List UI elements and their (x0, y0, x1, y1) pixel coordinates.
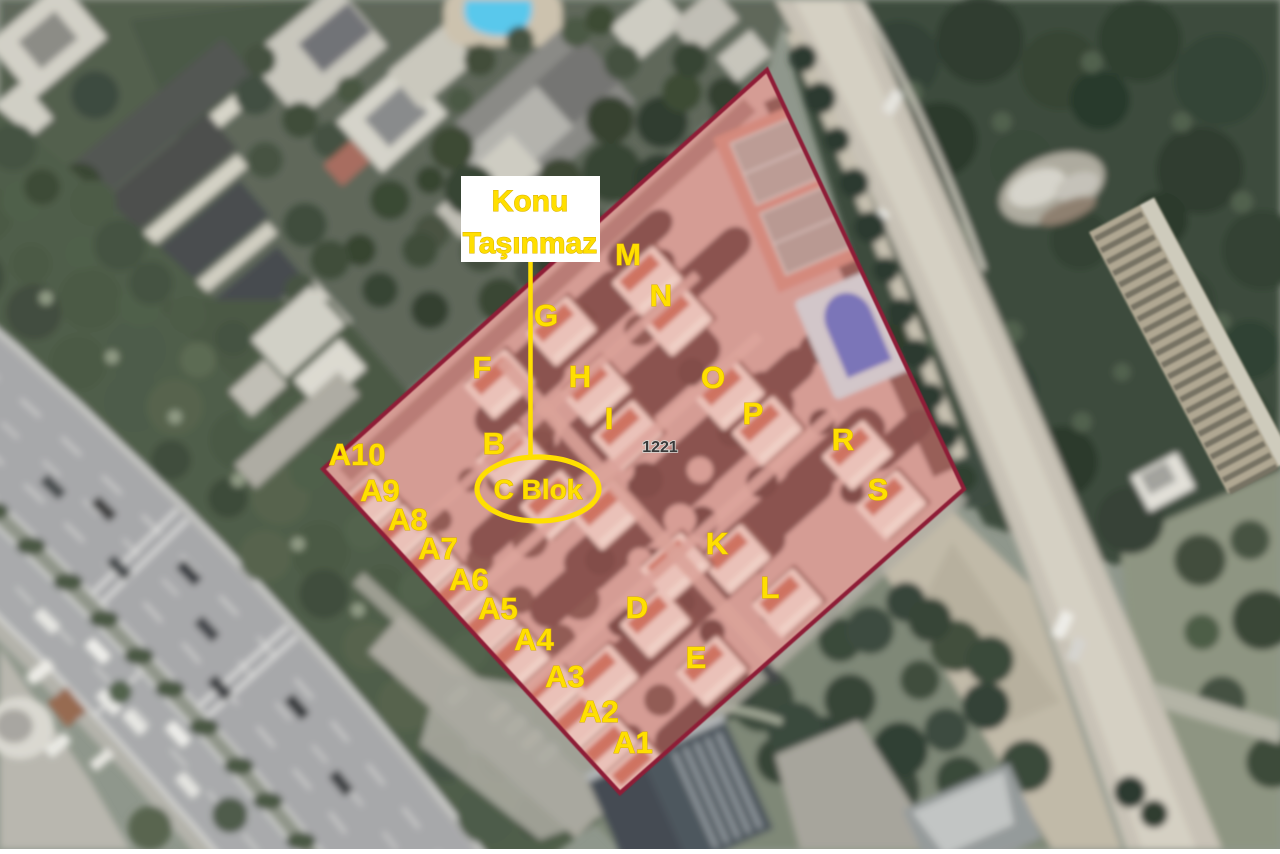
svg-text:O: O (701, 360, 725, 395)
svg-text:A7: A7 (418, 531, 458, 566)
svg-text:G: G (534, 298, 558, 333)
svg-text:B: B (483, 426, 505, 461)
svg-text:C Blok: C Blok (494, 474, 583, 505)
svg-text:A10: A10 (329, 437, 386, 472)
svg-text:N: N (650, 278, 672, 313)
svg-text:1221: 1221 (642, 439, 678, 456)
svg-text:S: S (868, 472, 889, 507)
svg-text:R: R (832, 422, 854, 457)
svg-text:M: M (615, 237, 641, 272)
svg-text:Konu: Konu (492, 185, 569, 218)
svg-text:I: I (605, 401, 614, 436)
svg-text:K: K (706, 526, 729, 561)
svg-text:D: D (626, 590, 648, 625)
svg-text:E: E (686, 640, 707, 675)
svg-text:A5: A5 (478, 591, 518, 626)
svg-text:P: P (743, 396, 764, 431)
svg-text:L: L (761, 570, 780, 605)
svg-text:A1: A1 (613, 725, 653, 760)
svg-text:Taşınmaz: Taşınmaz (463, 227, 598, 260)
svg-text:A3: A3 (545, 659, 585, 694)
svg-text:H: H (569, 359, 591, 394)
svg-text:A4: A4 (514, 622, 554, 657)
svg-text:A2: A2 (579, 694, 619, 729)
svg-text:F: F (473, 350, 492, 385)
